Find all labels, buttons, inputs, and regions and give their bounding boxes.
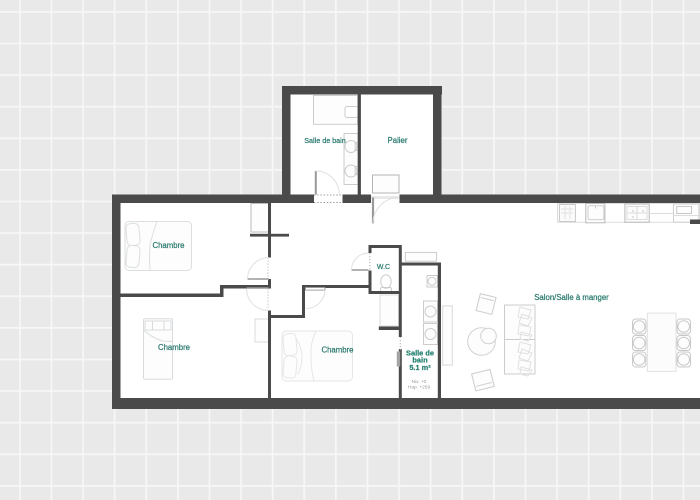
svg-text:Salle de bain: Salle de bain xyxy=(304,136,346,145)
svg-text:W.C: W.C xyxy=(377,264,390,271)
svg-text:Chambre: Chambre xyxy=(158,343,190,352)
svg-text:Chambre: Chambre xyxy=(321,346,353,355)
svg-text:Chambre: Chambre xyxy=(152,241,184,250)
svg-text:Palier: Palier xyxy=(388,136,408,145)
svg-text:5.1 m²: 5.1 m² xyxy=(409,363,431,372)
svg-text:Salon/Salle à manger: Salon/Salle à manger xyxy=(534,293,609,302)
svg-text:Hap. +259: Hap. +259 xyxy=(408,385,431,391)
svg-text:Niv. +0: Niv. +0 xyxy=(412,379,427,385)
